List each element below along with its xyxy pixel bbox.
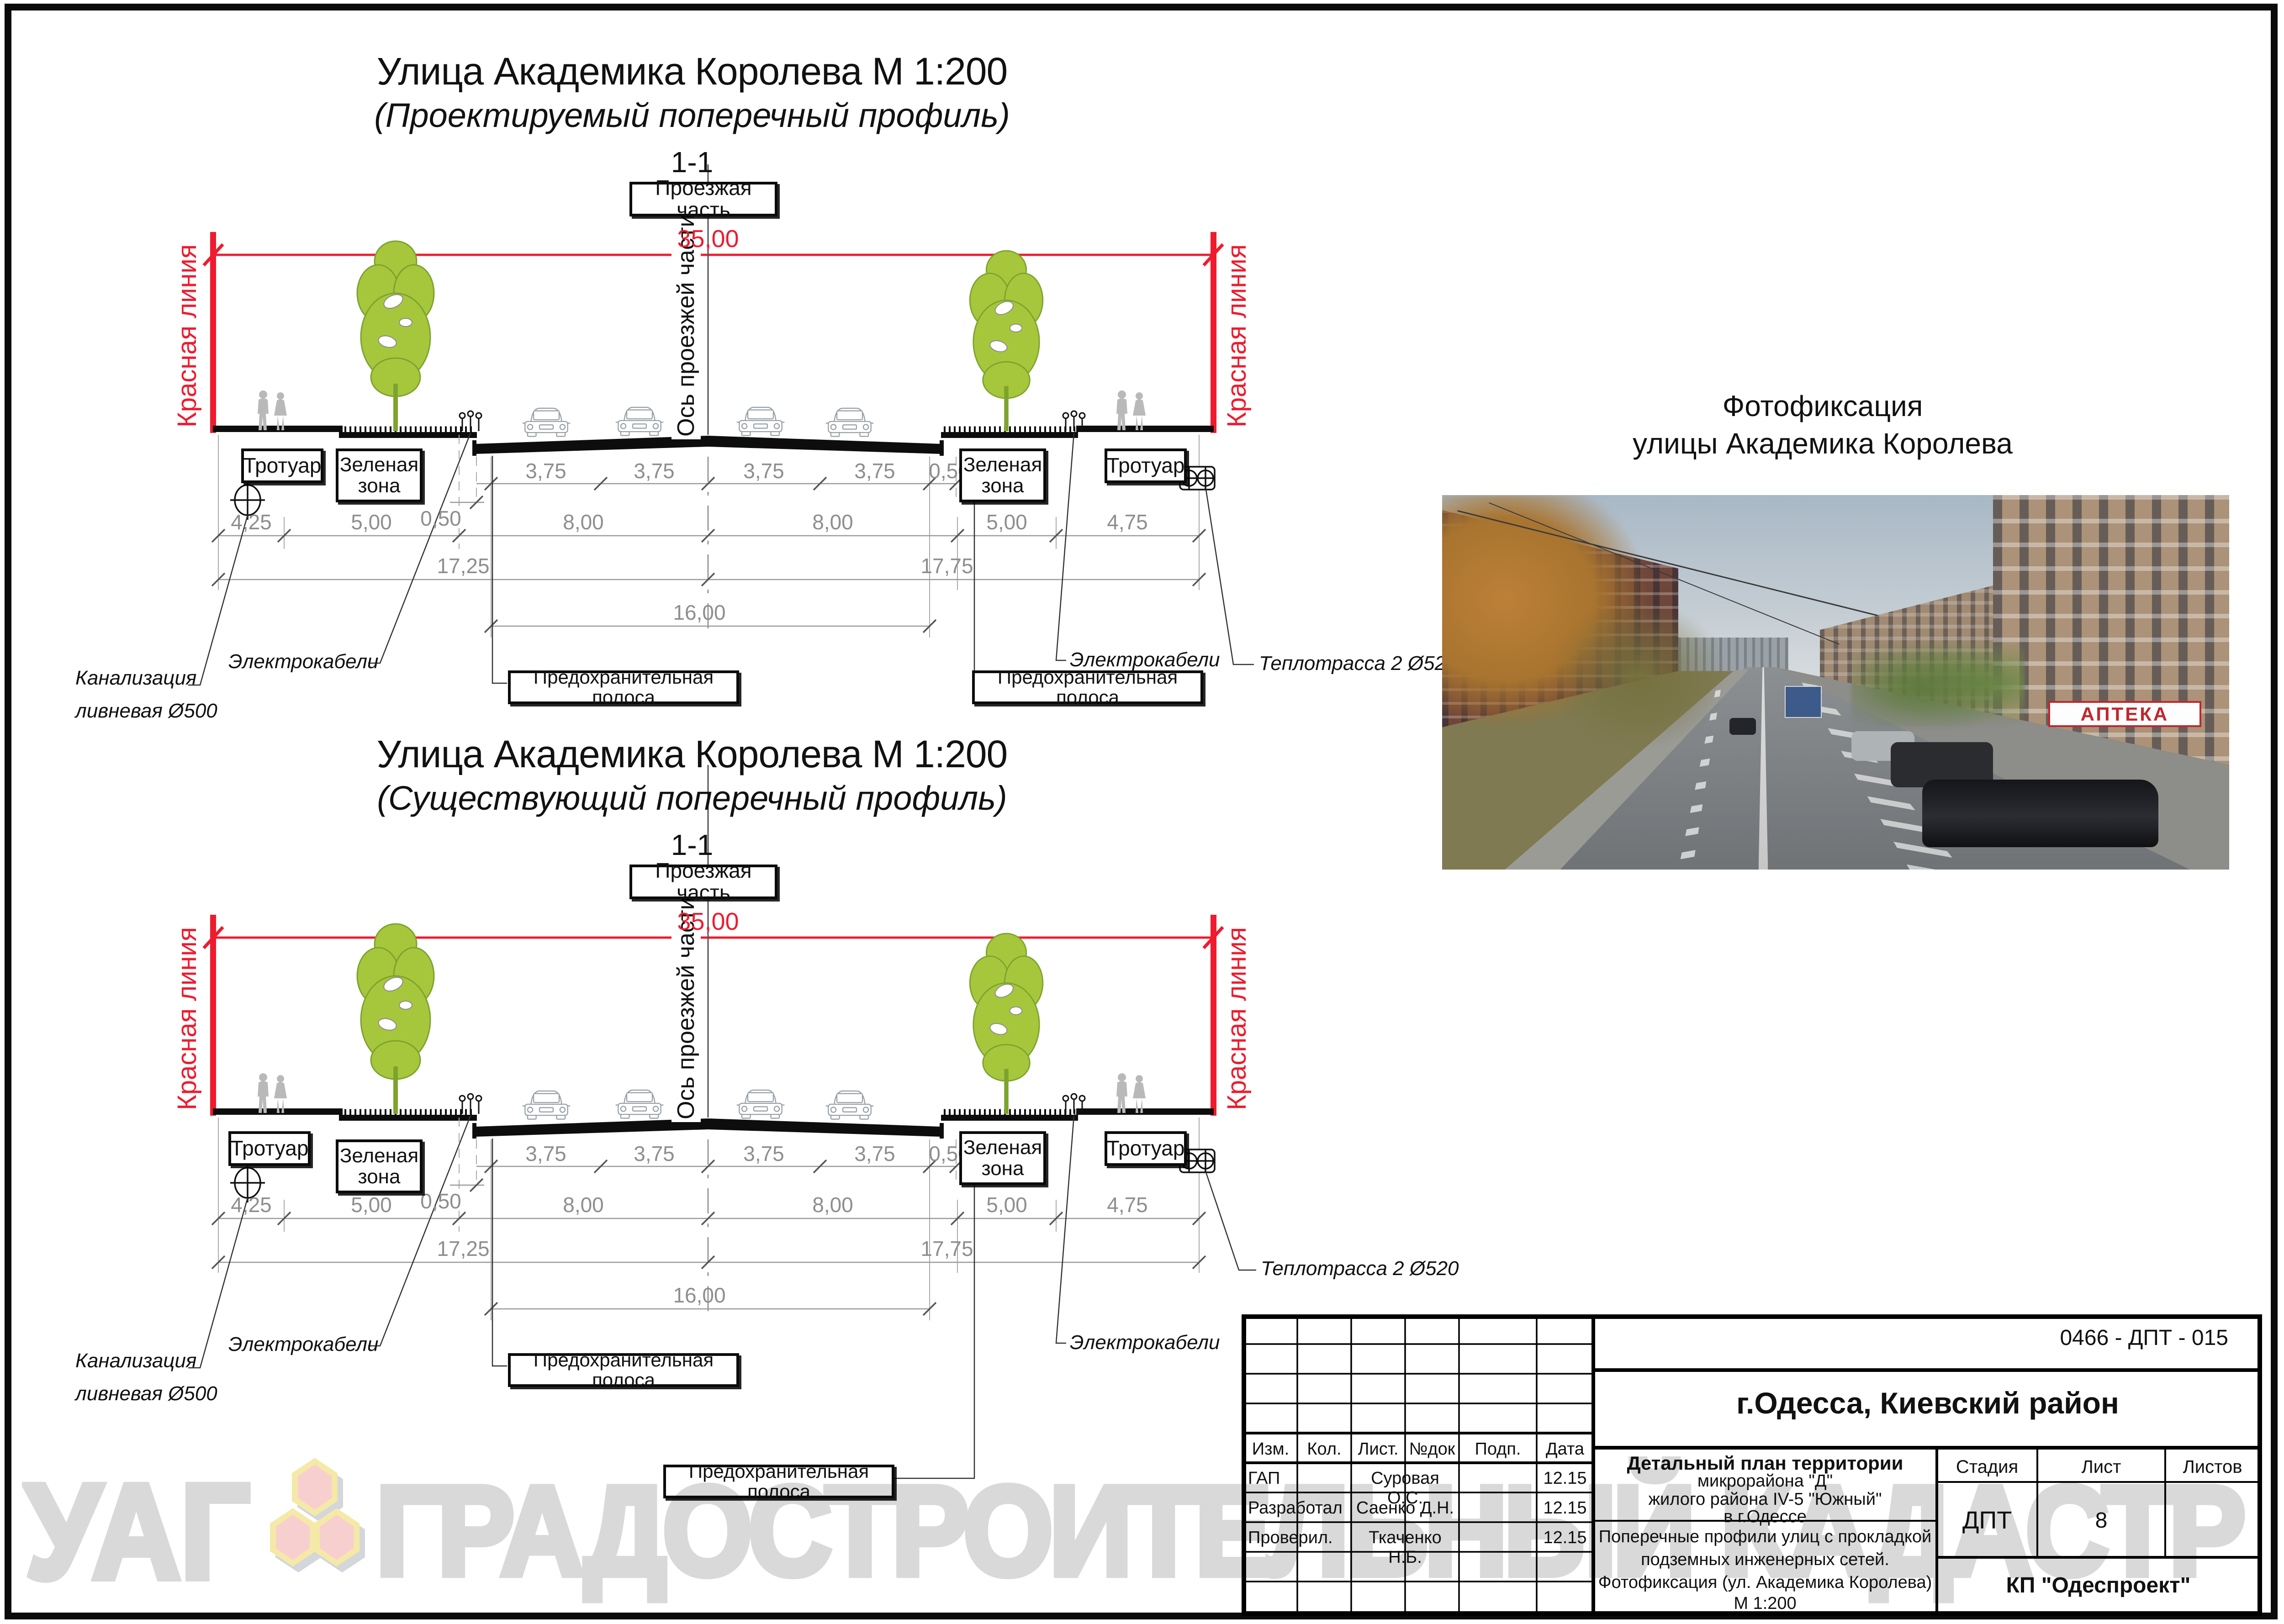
photo-caption-line1: Фотофиксация xyxy=(1498,389,2147,423)
guard-strip-box-left: Предохранительная полоса xyxy=(508,670,739,704)
dim-row2: 8,00 xyxy=(533,510,634,534)
title-block: 0466 - ДПТ - 015 г.Одесса, Киевский райо… xyxy=(1242,1314,2262,1616)
sheet-title-line4: М 1:200 xyxy=(1598,1594,1932,1613)
dim-row2: 5,00 xyxy=(321,510,422,534)
row-date: 12.15 xyxy=(1537,1528,1593,1548)
sidewalk-box-left: Тротуар xyxy=(241,448,323,483)
dim-lane: 3,75 xyxy=(613,1141,695,1166)
dim-carriageway: 16,00 xyxy=(649,600,750,625)
guard-strip-box-left: Предохранительная полоса xyxy=(508,1353,739,1387)
row-name: Саенко Д.Н. xyxy=(1351,1498,1459,1518)
col-podp: Подп. xyxy=(1459,1439,1537,1459)
dim-row2: 8,00 xyxy=(782,510,883,534)
sheet-title-line3: Фотофиксация (ул. Академика Королева) xyxy=(1598,1573,1932,1592)
sidewalk-box-right: Тротуар xyxy=(1105,1131,1187,1166)
roadway-label-box: Проезжая часть xyxy=(629,182,777,216)
dim-row2: 8,00 xyxy=(533,1192,634,1217)
sheet-title-line2: подземных инженерных сетей. xyxy=(1598,1550,1932,1570)
col-kol: Кол. xyxy=(1297,1439,1351,1459)
dim-lane: 3,75 xyxy=(723,1141,805,1166)
project-line4: в г.Одессе xyxy=(1602,1507,1928,1527)
row-date: 12.15 xyxy=(1537,1469,1593,1488)
cables-label-left: Электрокабели xyxy=(228,650,365,673)
dim-total-width: 35,00 xyxy=(653,225,763,253)
dim-row2: 4,75 xyxy=(1077,1192,1178,1217)
row-role: Разработал xyxy=(1248,1498,1343,1518)
photo-car-small-center xyxy=(1729,718,1756,735)
dim-lane: 3,75 xyxy=(834,459,916,483)
dim-carriageway: 16,00 xyxy=(649,1283,750,1308)
green-zone-box-right: Зеленая зона xyxy=(959,1131,1046,1185)
project-line2: микрорайона "Д" xyxy=(1602,1471,1928,1491)
section-mark: 1-1 xyxy=(0,145,1384,179)
profile-subtitle: (Проектируемый поперечный профиль) xyxy=(0,96,1384,135)
profile-subtitle: (Существующий поперечный профиль) xyxy=(0,779,1384,817)
profile-title: Улица Академика Королева М 1:200 xyxy=(0,732,1384,776)
sheet-label: Лист xyxy=(2037,1457,2165,1477)
dim-row2: 5,00 xyxy=(957,1192,1057,1217)
col-list: Лист. xyxy=(1351,1439,1405,1459)
dim-lane: 3,75 xyxy=(834,1141,916,1166)
heat-main-label: Теплотрасса 2 Ø520 xyxy=(1261,1257,1459,1280)
sidewalk-box-right: Тротуар xyxy=(1105,448,1187,483)
sewer-label-line1: Канализация xyxy=(75,667,196,690)
dim-row2: 4,25 xyxy=(201,1192,301,1217)
organization: КП "Одеспроект" xyxy=(1937,1573,2260,1598)
pharmacy-sign: АПТЕКА xyxy=(2048,701,2201,727)
photo-car-black xyxy=(1922,780,2158,847)
doc-number: 0466 - ДПТ - 015 xyxy=(1918,1325,2228,1350)
red-line-label-left: Красная линия xyxy=(172,233,202,438)
guard-strip-box-right: Предохранительная полоса xyxy=(972,670,1203,704)
project-line3: жилого района IV-5 "Южный" xyxy=(1602,1490,1928,1509)
dim-half-right: 17,75 xyxy=(897,1236,997,1261)
row-date: 12.15 xyxy=(1537,1498,1593,1518)
green-zone-box-left: Зеленая зона xyxy=(336,1139,423,1193)
profile-title: Улица Академика Королева М 1:200 xyxy=(0,49,1384,94)
street-photo: АПТЕКА xyxy=(1442,495,2229,870)
photo-billboard xyxy=(1785,686,1822,718)
sidewalk-box-left: Тротуар xyxy=(228,1131,311,1166)
guard-strip-box-right: Предохранительная полоса xyxy=(663,1465,894,1498)
red-line-label-left: Красная линия xyxy=(172,916,202,1121)
dim-half-left: 17,25 xyxy=(413,1236,513,1261)
sheets-label: Листов xyxy=(2165,1457,2260,1477)
green-zone-box-left: Зеленая зона xyxy=(336,448,423,502)
cables-label-left: Электрокабели xyxy=(228,1333,365,1356)
dim-lane: 3,75 xyxy=(505,459,587,483)
stage-value: ДПТ xyxy=(1937,1506,2037,1534)
roadway-label-box: Проезжая часть xyxy=(629,865,777,899)
dim-lane: 3,75 xyxy=(505,1141,587,1166)
dim-lane: 3,75 xyxy=(723,459,805,483)
dim-half-right: 17,75 xyxy=(897,554,997,578)
section-mark: 1-1 xyxy=(0,828,1384,862)
photo-trees-right xyxy=(1851,638,2025,728)
sheet-title-line1: Поперечные профили улиц с прокладкой xyxy=(1598,1527,1932,1547)
row-role: Проверил. xyxy=(1248,1528,1333,1548)
sewer-label-line1: Канализация xyxy=(75,1350,196,1372)
city-title: г.Одесса, Киевский район xyxy=(1593,1386,2262,1420)
red-line-label-right: Красная линия xyxy=(1221,916,1252,1121)
project-line1: Детальный план территории xyxy=(1602,1452,1928,1474)
dim-row2: 5,00 xyxy=(321,1192,422,1217)
cables-label-right: Электрокабели xyxy=(1070,1331,1220,1354)
green-zone-box-right: Зеленая зона xyxy=(959,448,1046,502)
dim-row2: 4,75 xyxy=(1077,510,1178,534)
dim-row2: 5,00 xyxy=(957,510,1057,534)
col-izm: Изм. xyxy=(1244,1439,1297,1459)
col-data: Дата xyxy=(1537,1439,1593,1459)
heat-main-label: Теплотрасса 2 Ø520 xyxy=(1259,652,1457,675)
dim-total-width: 35,00 xyxy=(653,907,763,936)
row-role: ГАП xyxy=(1248,1469,1280,1488)
col-ndok: №док xyxy=(1405,1439,1459,1459)
stage-label: Стадия xyxy=(1937,1457,2037,1477)
dim-half-left: 17,25 xyxy=(413,554,513,578)
dim-row2: 8,00 xyxy=(782,1192,883,1217)
photo-caption-line2: улицы Академика Королева xyxy=(1498,427,2147,460)
photo-tree-olive-left xyxy=(1552,600,1725,750)
drawing-sheet: Улица Академика Королева М 1:200 (Проект… xyxy=(0,0,2284,1624)
sewer-label-line2: ливневая Ø500 xyxy=(75,1382,217,1405)
dim-row2: 4,25 xyxy=(201,510,301,534)
red-line-label-right: Красная линия xyxy=(1221,233,1252,438)
row-name: Ткаченко Н.Б. xyxy=(1351,1528,1459,1567)
profile-existing: Улица Академика Королева М 1:200 (Сущест… xyxy=(0,710,1416,1514)
sheet-number: 8 xyxy=(2037,1508,2165,1533)
dim-lane: 3,75 xyxy=(613,459,695,483)
